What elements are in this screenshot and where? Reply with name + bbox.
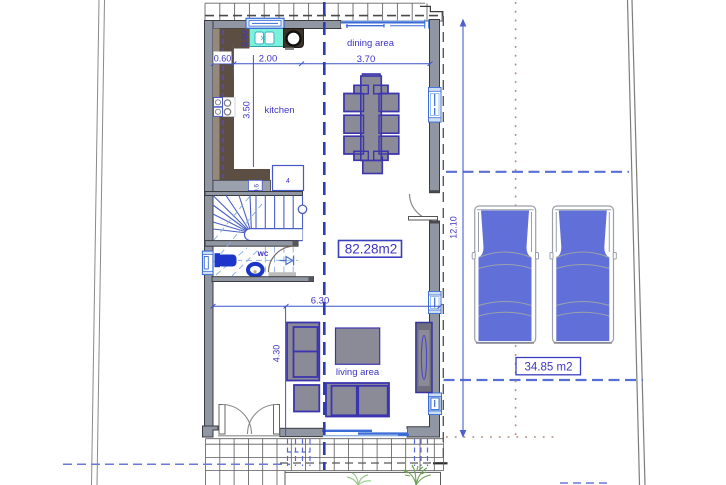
svg-text:4: 4 [286,178,290,185]
svg-text:3.70: 3.70 [357,54,376,65]
svg-text:4.30: 4.30 [271,345,281,363]
svg-text:82.28m2: 82.28m2 [345,242,398,257]
svg-text:dining area: dining area [347,38,395,49]
svg-text:0.60: 0.60 [214,54,232,64]
svg-text:wc: wc [257,249,269,258]
svg-text:living area: living area [336,367,380,378]
svg-text:3.50: 3.50 [242,101,252,119]
svg-text:0.60: 0.60 [239,30,249,47]
svg-text:34.85 m2: 34.85 m2 [525,362,573,374]
svg-text:12.10: 12.10 [449,216,459,239]
svg-text:kitchen: kitchen [264,105,294,116]
svg-text:2.00: 2.00 [259,54,278,65]
svg-text:6.30: 6.30 [311,296,330,307]
